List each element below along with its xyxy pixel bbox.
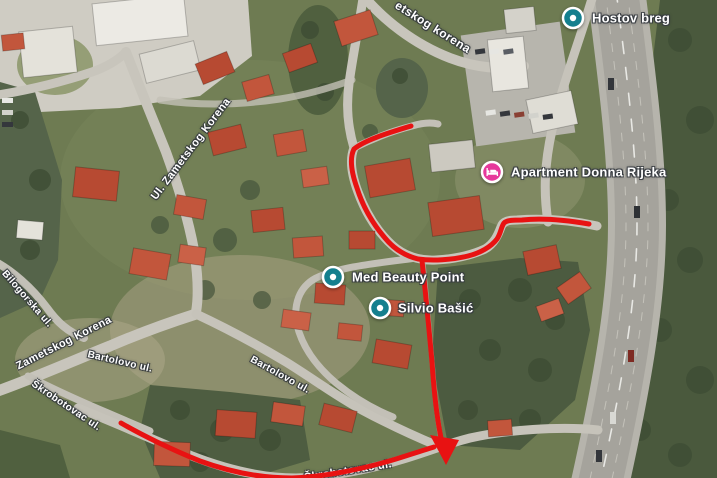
- poi-layer: Hostov breg Apartment Donna Rijeka Med B…: [0, 0, 717, 478]
- poi-label-med-beauty-point[interactable]: Med Beauty Point: [352, 270, 464, 285]
- poi-pin-med-beauty-point[interactable]: [320, 264, 346, 290]
- place-dot-icon: [330, 274, 336, 280]
- poi-label-hostov-breg[interactable]: Hostov breg: [592, 11, 670, 26]
- place-dot-icon: [377, 305, 383, 311]
- poi-pin-apartment-donna-rijeka[interactable]: [479, 159, 505, 185]
- poi-label-silvio-basic[interactable]: Silvio Bašić: [398, 301, 473, 316]
- place-dot-icon: [570, 15, 576, 21]
- poi-pin-silvio-basic[interactable]: [367, 295, 393, 321]
- poi-pin-hostov-breg[interactable]: [560, 5, 586, 31]
- map-canvas[interactable]: etskog korena Ul. Zametskog Korena Bilog…: [0, 0, 717, 478]
- poi-label-apartment-donna-rijeka[interactable]: Apartment Donna Rijeka: [511, 165, 666, 180]
